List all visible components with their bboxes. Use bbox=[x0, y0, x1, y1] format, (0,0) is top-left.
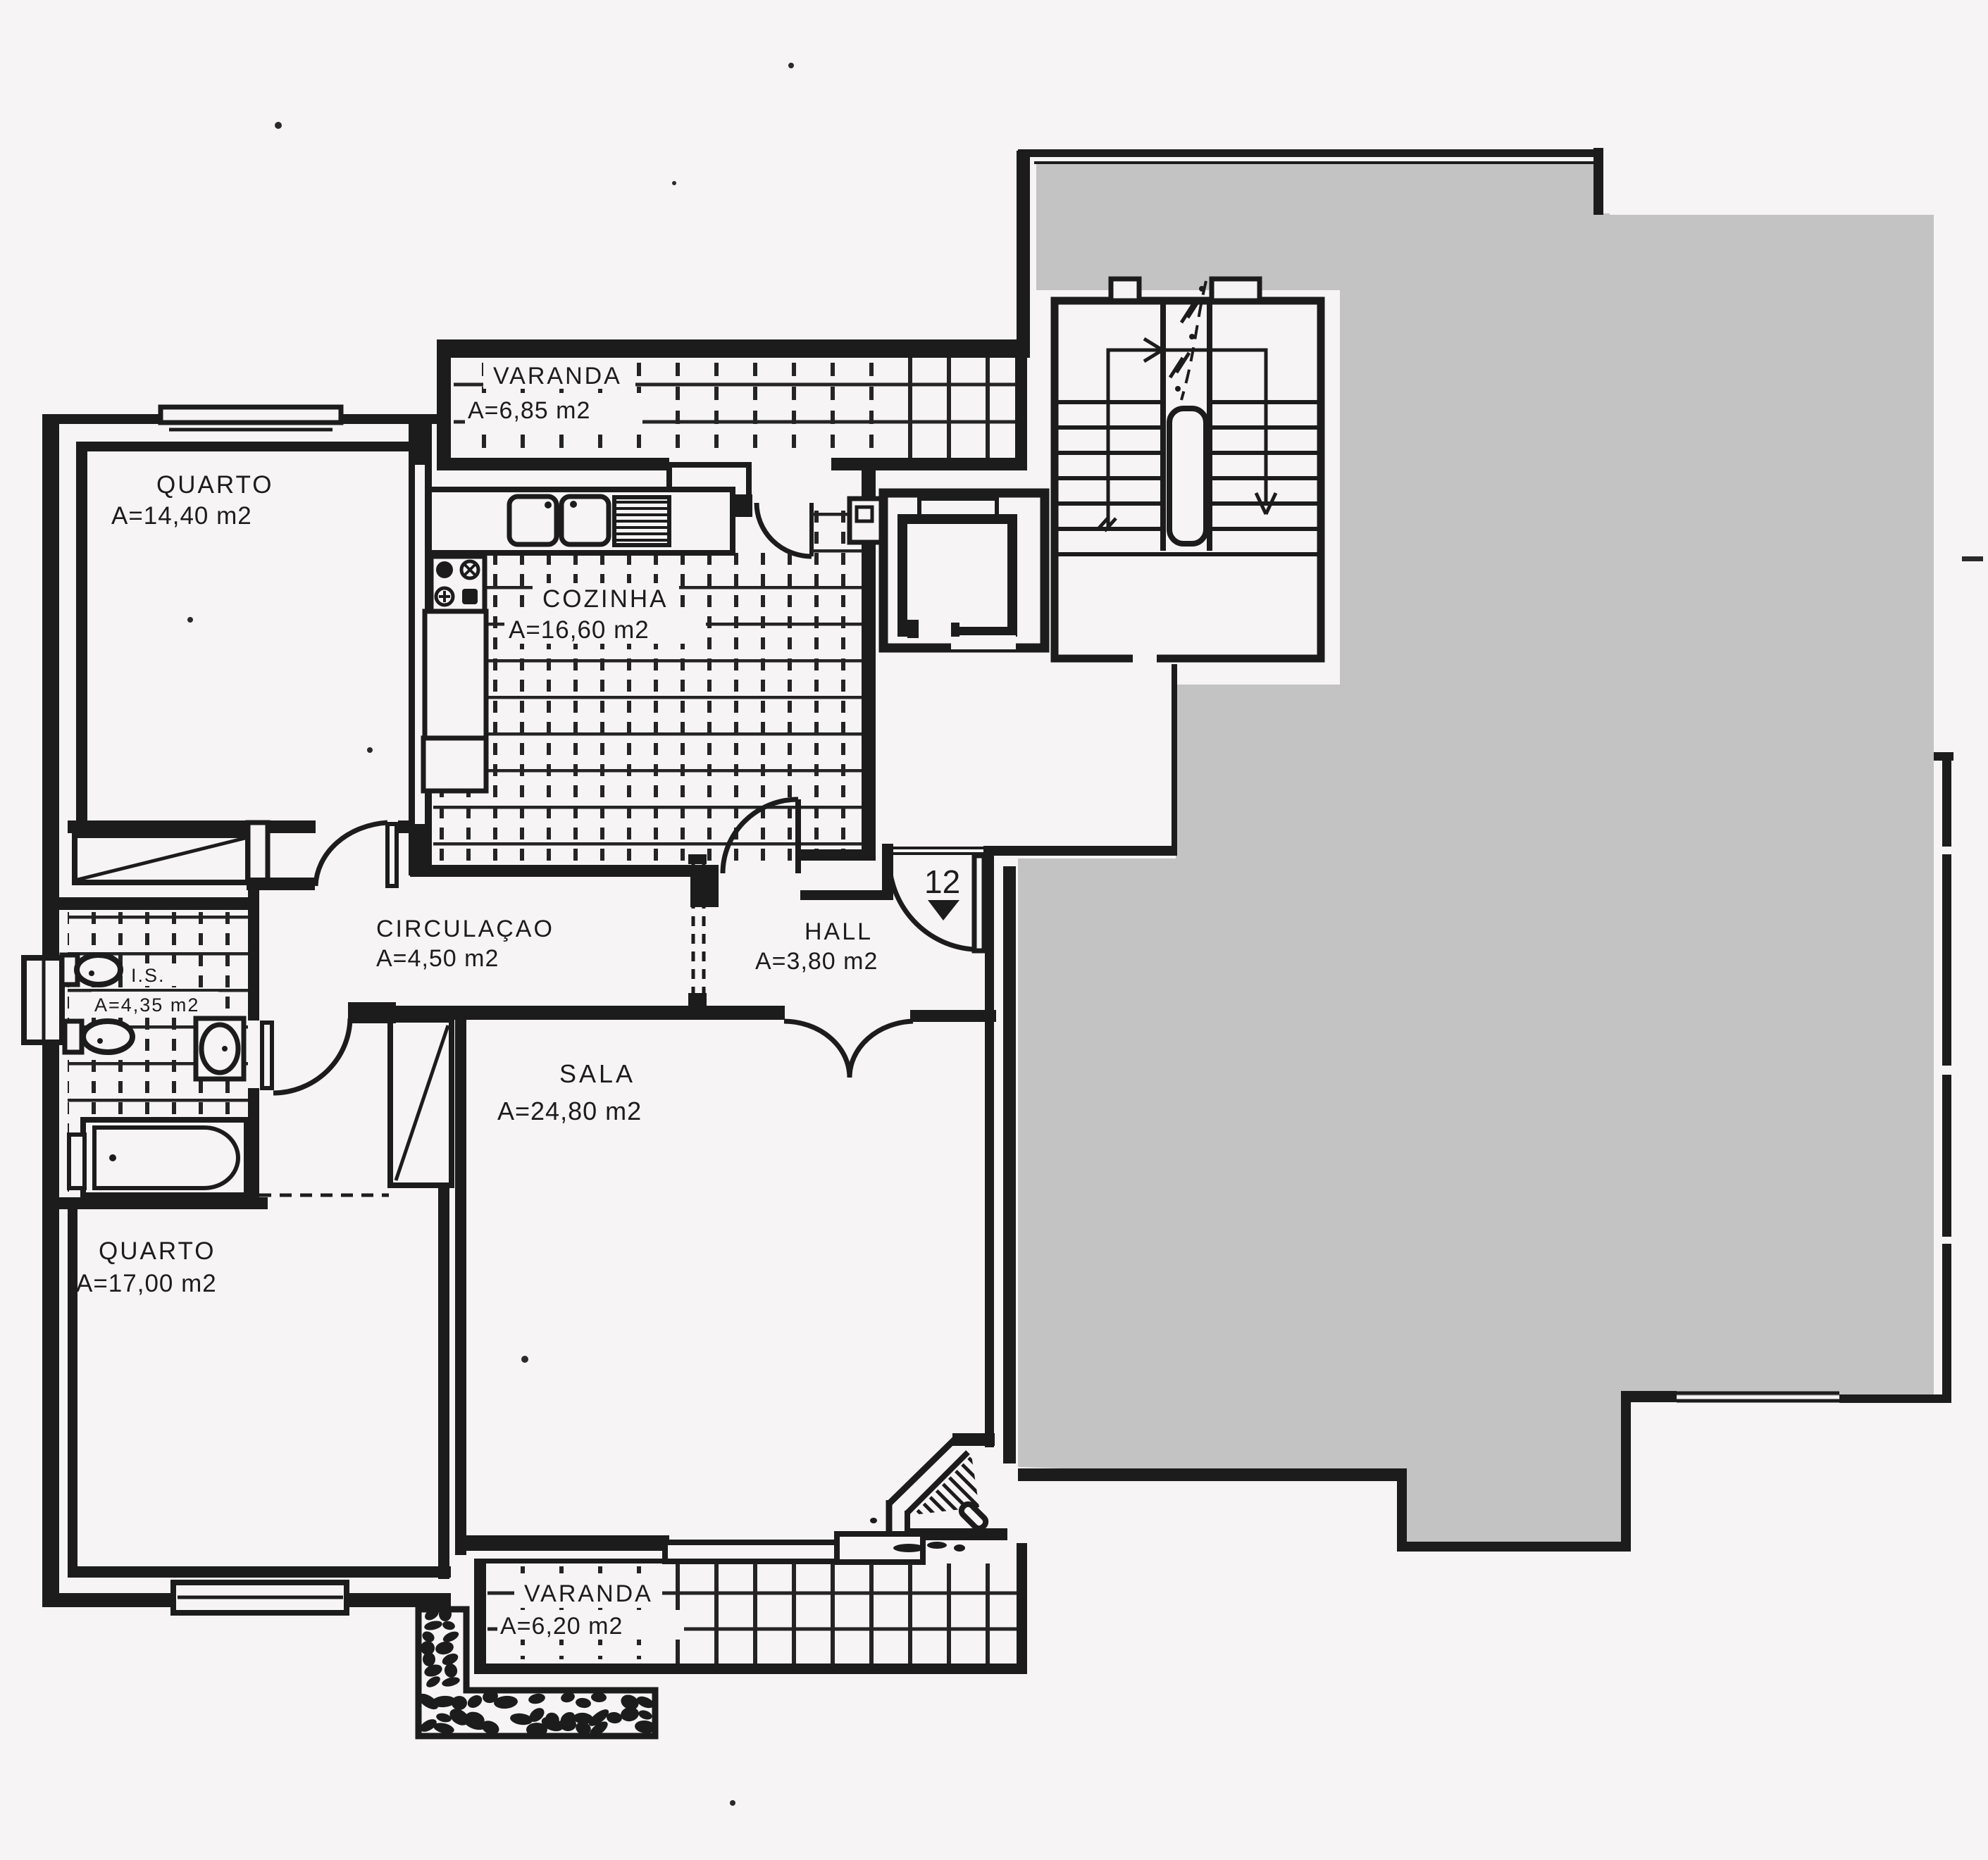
svg-text:A=16,60 m2: A=16,60 m2 bbox=[509, 616, 650, 644]
svg-text:SALA: SALA bbox=[559, 1059, 635, 1088]
svg-text:QUARTO: QUARTO bbox=[99, 1237, 216, 1265]
svg-text:A=6,85 m2: A=6,85 m2 bbox=[468, 397, 590, 424]
svg-text:A=17,00 m2: A=17,00 m2 bbox=[76, 1270, 217, 1297]
svg-text:A=4,35 m2: A=4,35 m2 bbox=[94, 994, 199, 1016]
svg-text:A=4,50 m2: A=4,50 m2 bbox=[376, 945, 499, 972]
svg-text:COZINHA: COZINHA bbox=[542, 585, 669, 613]
svg-text:QUARTO: QUARTO bbox=[156, 471, 273, 499]
svg-text:VARANDA: VARANDA bbox=[493, 363, 622, 389]
svg-text:12: 12 bbox=[924, 863, 960, 900]
svg-text:I.S.: I.S. bbox=[131, 965, 166, 986]
svg-text:A=6,20 m2: A=6,20 m2 bbox=[500, 1613, 623, 1640]
svg-text:A=24,80 m2: A=24,80 m2 bbox=[497, 1097, 642, 1125]
svg-text:VARANDA: VARANDA bbox=[524, 1580, 653, 1607]
svg-text:HALL: HALL bbox=[804, 918, 873, 945]
svg-text:CIRCULAÇAO: CIRCULAÇAO bbox=[376, 916, 554, 942]
svg-text:A=14,40 m2: A=14,40 m2 bbox=[111, 502, 252, 530]
svg-text:A=3,80 m2: A=3,80 m2 bbox=[755, 948, 878, 975]
